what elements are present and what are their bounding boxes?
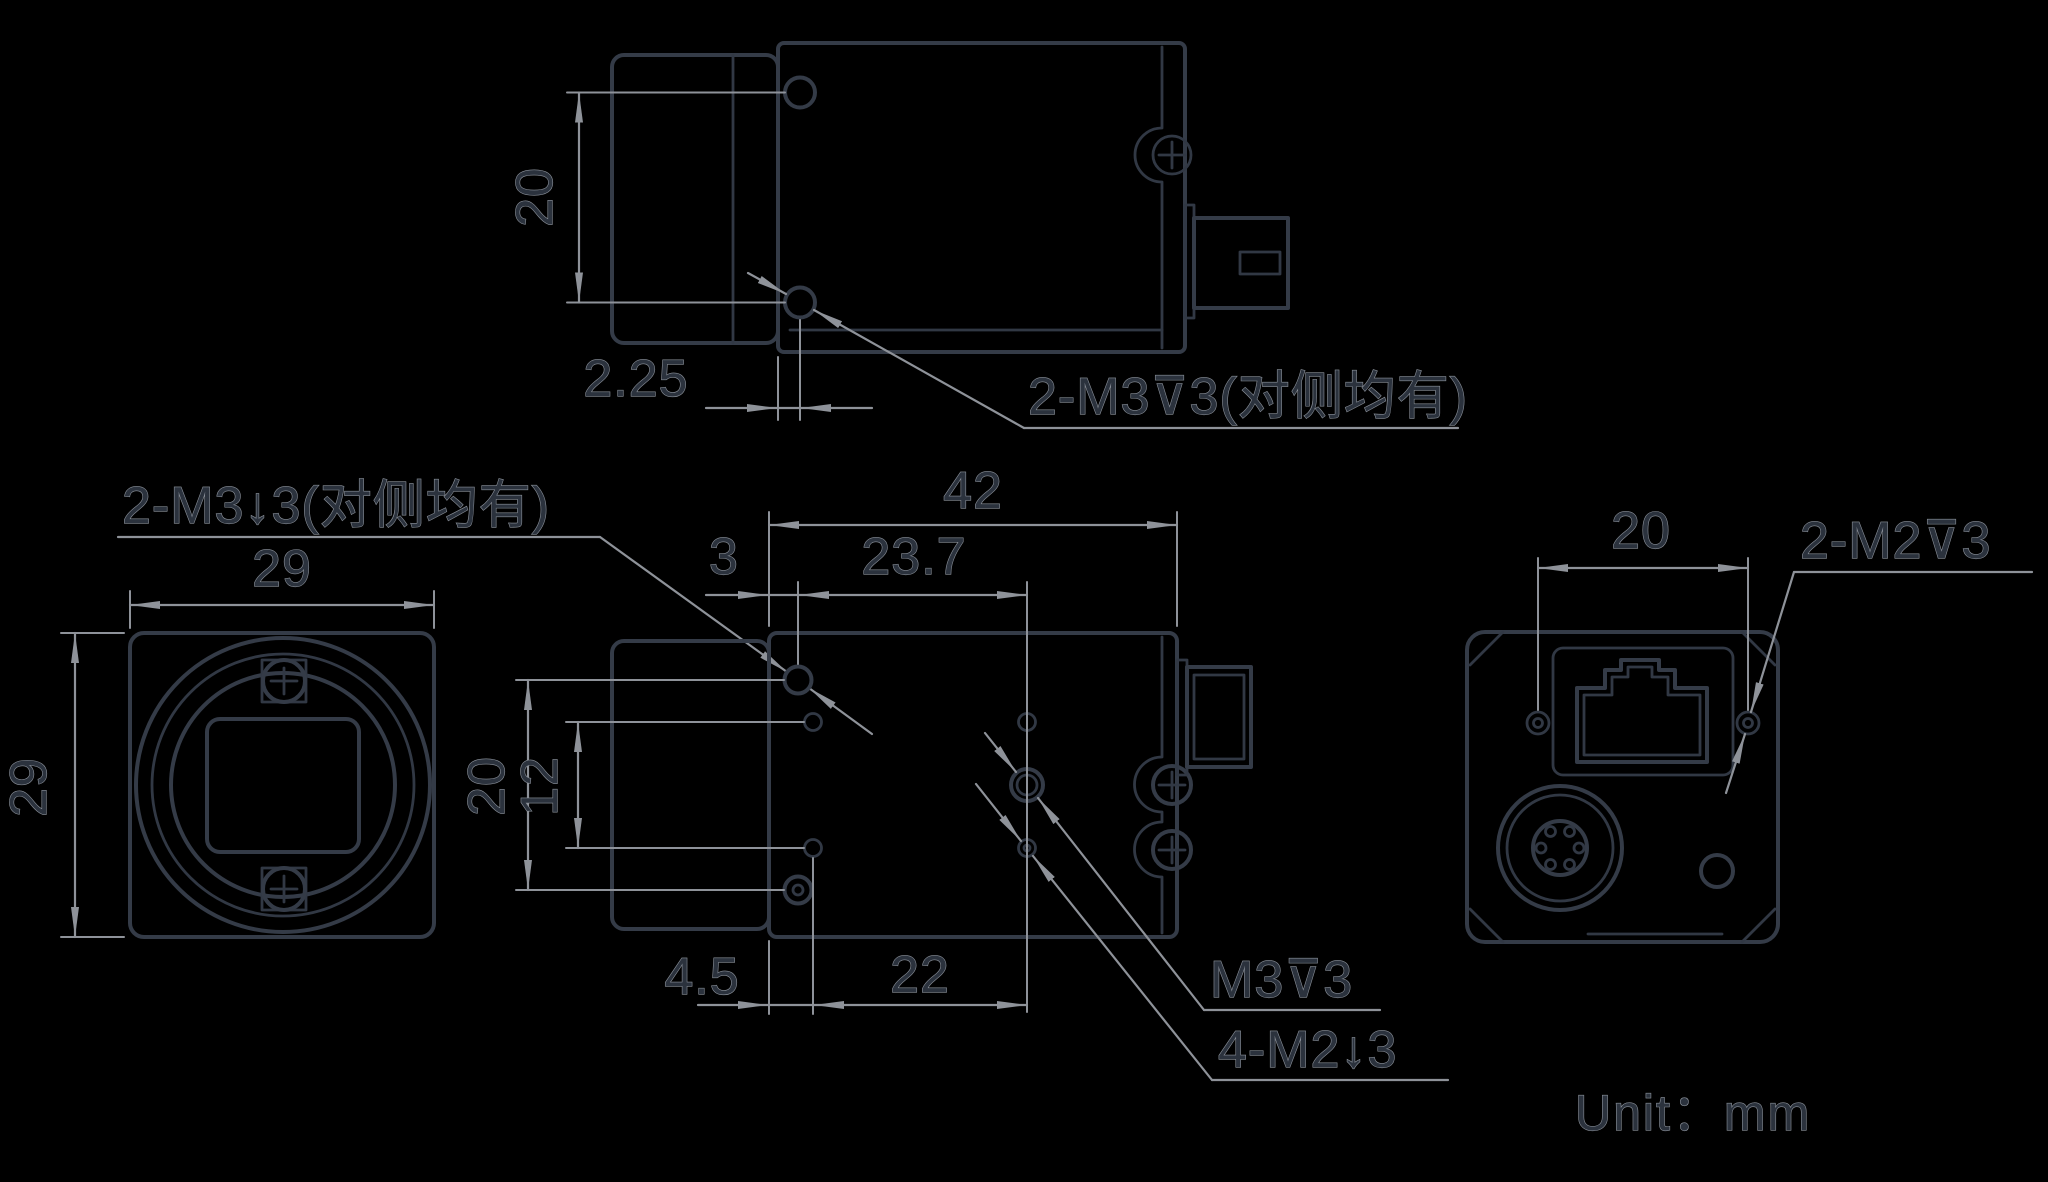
thread-label-rear: 2-M2⊽3 — [1800, 512, 1991, 570]
dimension-front-width: 29 — [130, 540, 434, 628]
rj45-port — [1577, 660, 1707, 762]
top-view-lens-flange — [612, 55, 778, 343]
rear-view-body — [1467, 632, 1778, 942]
dimension-vertical-spacing: 20 12 — [458, 680, 804, 890]
leader-line — [1038, 798, 1204, 1010]
technical-drawing-canvas: 20 2.25 2-M3⊽3(对侧均有) 2-M3↓3(对侧均有) — [0, 0, 2048, 1182]
dim-text-22: 22 — [890, 946, 950, 1004]
top-view-io-connector — [1185, 205, 1288, 318]
m2-screw-hole-left — [1527, 712, 1549, 734]
top-view-body — [778, 43, 1185, 352]
top-view: 20 2.25 2-M3⊽3(对侧均有) — [506, 43, 1468, 428]
leader-line — [1033, 856, 1212, 1080]
dimension-rear-screw-spacing: 20 — [1538, 502, 1748, 710]
leader-tail — [1726, 734, 1745, 793]
phillips-screw-icon — [1153, 831, 1191, 869]
dim-text-42: 42 — [943, 462, 1003, 520]
m2-thread-callout: 4-M2↓3 — [976, 784, 1448, 1080]
dim-text-29-height: 29 — [0, 757, 58, 817]
thread-label-4m2: 4-M2↓3 — [1218, 1021, 1397, 1079]
dimension-front-height: 29 — [0, 633, 124, 937]
rear-thread-callout: 2-M2⊽3 — [1726, 512, 2032, 793]
rear-view-corner-chamfers — [1470, 632, 1775, 942]
dim-text-3: 3 — [709, 528, 739, 586]
mounting-hole-m3-bottom — [785, 288, 815, 318]
leader-line — [600, 537, 787, 672]
dim-text-4-5: 4.5 — [664, 948, 739, 1006]
mounting-hole-m3-front-bottom-inner — [793, 885, 803, 895]
leader-line — [814, 310, 1024, 428]
mounting-hole-m2-front-bottom — [805, 840, 822, 857]
side-view-body — [769, 633, 1177, 937]
front-view: 29 29 — [0, 540, 434, 937]
leader-tail — [985, 733, 1016, 772]
dim-text-20-top: 20 — [506, 167, 564, 227]
unit-note: Unit：mm — [1575, 1085, 1811, 1141]
leader-tail — [748, 273, 786, 294]
thread-label-m3: M3⊽3 — [1210, 951, 1353, 1009]
m2-screw-hole-right — [1737, 712, 1759, 734]
mounting-hole-m3-front-top — [785, 667, 812, 694]
dimension-hole-offsets: 3 23.7 — [706, 528, 1027, 1012]
dim-text-2-25: 2.25 — [583, 350, 688, 408]
mounting-hole-m3-top — [785, 78, 815, 108]
leader-line — [1751, 572, 1794, 712]
lens-mount-inner-ring — [171, 673, 395, 897]
thread-label-top: 2-M3⊽3(对侧均有) — [1028, 368, 1468, 426]
mounting-hole-m3-front-bottom — [785, 877, 812, 904]
side-view: 42 3 23.7 20 12 — [458, 462, 1448, 1080]
phillips-screw-icon — [1153, 766, 1191, 804]
status-led — [1701, 855, 1733, 887]
mounting-hole-m2-front-top — [805, 714, 822, 731]
dim-text-23-7: 23.7 — [861, 528, 966, 586]
dim-text-12: 12 — [511, 756, 569, 816]
power-connector — [1498, 786, 1622, 910]
dimension-top-hole-spacing: 20 — [506, 93, 785, 303]
side-view-io-connector — [1177, 660, 1251, 775]
phillips-screw-icon — [262, 868, 306, 910]
rear-view: 20 2-M2⊽3 — [1467, 502, 2032, 942]
sensor-window — [207, 719, 359, 852]
dim-text-20-rear: 20 — [1611, 502, 1671, 560]
side-view-lens-flange — [612, 641, 769, 929]
dim-text-29-width: 29 — [252, 540, 312, 598]
dim-text-20-side: 20 — [458, 756, 516, 816]
top-view-rear-cover-seam — [1135, 47, 1162, 348]
dimension-body-length: 42 — [769, 462, 1177, 626]
phillips-screw-icon — [1153, 136, 1191, 174]
phillips-screw-icon — [262, 660, 306, 702]
dimension-top-hole-offset: 2.25 — [583, 320, 872, 420]
camera-dimension-drawing: 20 2.25 2-M3⊽3(对侧均有) 2-M3↓3(对侧均有) — [0, 0, 2048, 1182]
front-view-body — [130, 633, 434, 937]
thread-label-front: 2-M3↓3(对侧均有) — [122, 477, 550, 535]
